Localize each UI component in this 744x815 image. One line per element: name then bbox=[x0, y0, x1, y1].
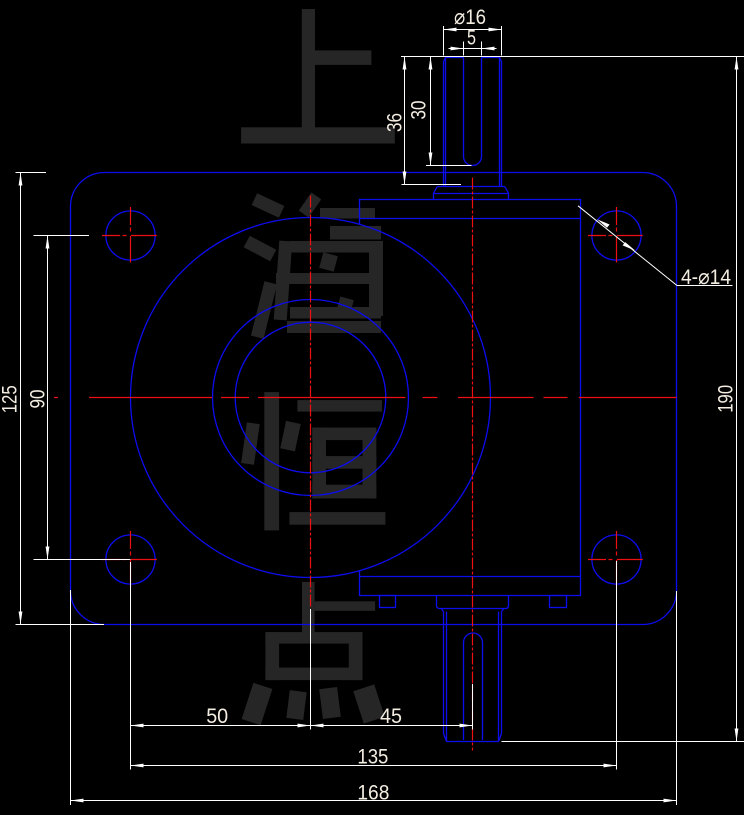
svg-text:4-⌀14: 4-⌀14 bbox=[681, 265, 731, 289]
svg-text:5: 5 bbox=[467, 26, 476, 50]
svg-text:50: 50 bbox=[206, 704, 228, 728]
svg-text:30: 30 bbox=[407, 100, 431, 119]
svg-text:90: 90 bbox=[25, 389, 49, 408]
svg-text:36: 36 bbox=[383, 113, 407, 132]
svg-text:125: 125 bbox=[0, 385, 21, 413]
svg-text:190: 190 bbox=[714, 385, 738, 413]
svg-text:168: 168 bbox=[357, 781, 389, 805]
svg-text:45: 45 bbox=[380, 704, 402, 728]
svg-text:135: 135 bbox=[357, 744, 388, 768]
